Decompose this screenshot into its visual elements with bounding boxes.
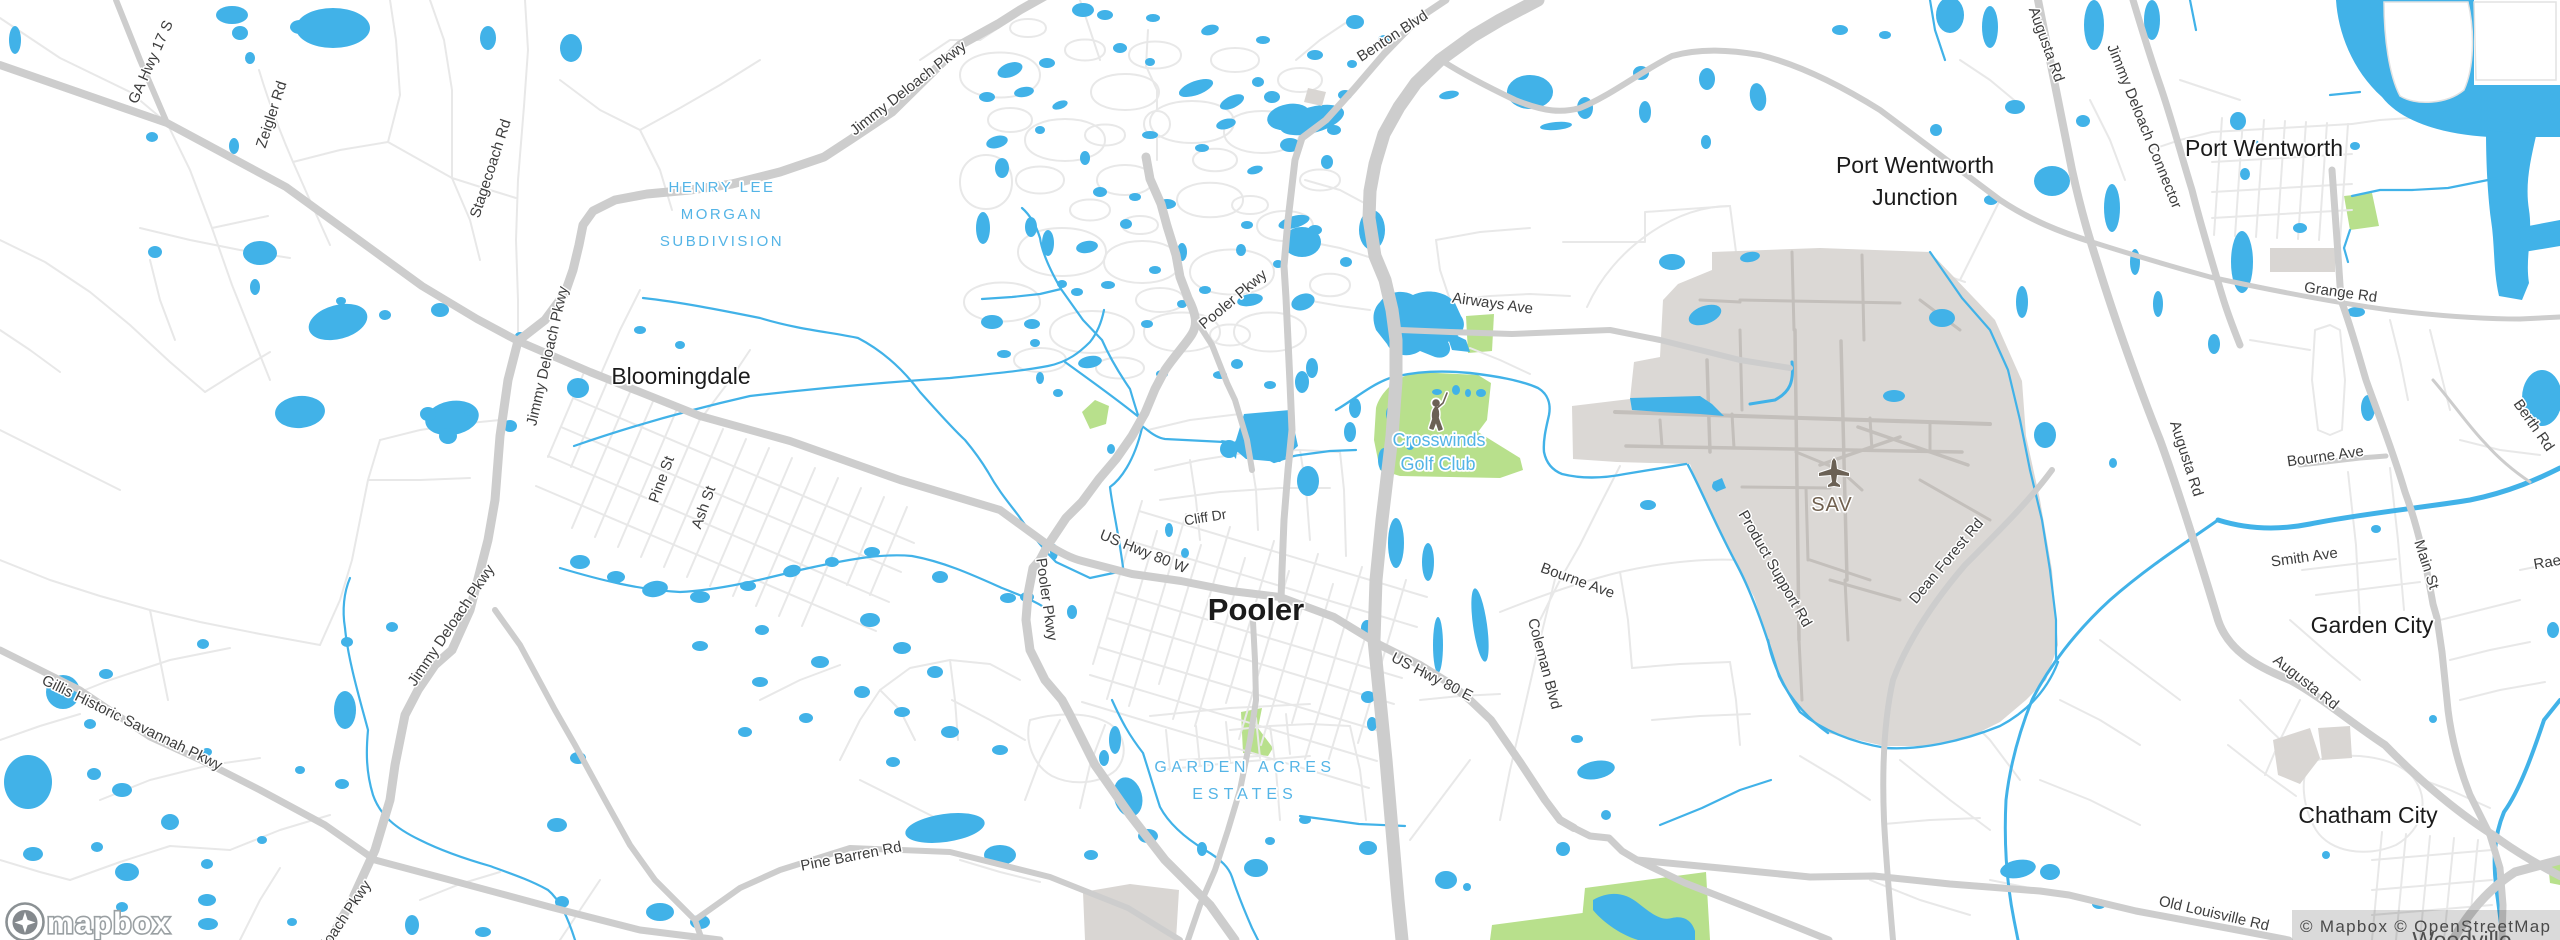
- svg-text:mapbox: mapbox: [47, 907, 171, 940]
- svg-text:Junction: Junction: [1872, 184, 1958, 210]
- svg-text:Golf Club: Golf Club: [1400, 454, 1475, 474]
- svg-text:MORGAN: MORGAN: [681, 206, 764, 223]
- svg-text:Port Wentworth: Port Wentworth: [2185, 135, 2343, 161]
- svg-text:SAV: SAV: [1811, 494, 1853, 516]
- svg-text:HENRY LEE: HENRY LEE: [669, 179, 776, 196]
- svg-text:Port Wentworth: Port Wentworth: [1836, 152, 1994, 178]
- svg-text:Pooler: Pooler: [1208, 592, 1304, 627]
- svg-text:Woodville: Woodville: [2412, 927, 2511, 940]
- svg-text:Chatham City: Chatham City: [2298, 802, 2438, 828]
- svg-text:GARDEN ACRES: GARDEN ACRES: [1154, 759, 1335, 776]
- svg-text:Bloomingdale: Bloomingdale: [611, 363, 750, 389]
- svg-text:SUBDIVISION: SUBDIVISION: [660, 233, 784, 250]
- svg-text:Garden City: Garden City: [2311, 612, 2434, 638]
- svg-text:ESTATES: ESTATES: [1192, 786, 1298, 803]
- svg-text:Crosswinds: Crosswinds: [1392, 430, 1485, 450]
